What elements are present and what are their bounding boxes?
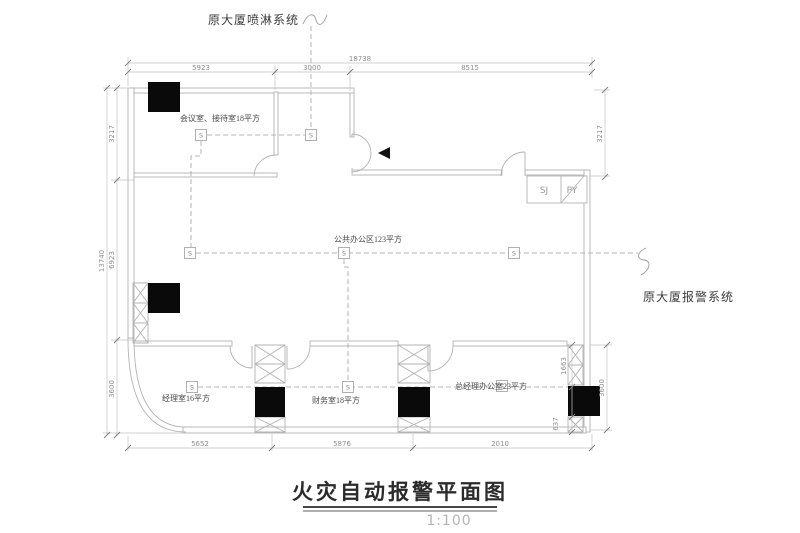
- wall-segment: [350, 93, 354, 137]
- detector-glyph: S: [342, 250, 346, 258]
- curved-wall: [128, 338, 186, 432]
- alarm-speaker: [148, 82, 180, 112]
- wall-segment: [310, 341, 398, 346]
- room-label-open-office: 公共办公区123平方: [334, 234, 402, 244]
- room-label-manager: 经理室16平方: [162, 393, 210, 403]
- annotation-alarm-system: 原大厦报警系统: [643, 289, 734, 304]
- alarm-speaker: [398, 387, 430, 417]
- dim-top-3: 8515: [461, 64, 479, 72]
- alarm-speaker: [568, 386, 600, 416]
- detector-glyph: S: [199, 132, 203, 140]
- structural-columns: [133, 283, 583, 432]
- shaft-label-py: PY: [567, 186, 578, 196]
- break-squiggle-right: [639, 248, 649, 275]
- dim-top-2: 3000: [303, 64, 321, 72]
- break-squiggle-top: [303, 15, 327, 25]
- wire: [191, 141, 201, 247]
- smoke-detector: S: [509, 248, 520, 259]
- alarm-wiring: [191, 26, 638, 387]
- room-labels: 会议室、接待室18平方 公共办公区123平方 经理室16平方 财务室18平方 总…: [162, 113, 527, 405]
- wall-segment: [352, 170, 502, 175]
- drawing-scale: 1:100: [426, 513, 471, 529]
- dim-left-total: 13740: [98, 250, 106, 272]
- cad-sheet: SJ PY S S S S S S S S: [0, 0, 800, 533]
- wall-segment: [525, 170, 587, 175]
- detector-glyph: S: [190, 384, 194, 392]
- door-arc: [230, 346, 252, 368]
- floor-plan-canvas: SJ PY S S S S S S S S: [0, 0, 800, 533]
- shaft-boxes: SJ PY: [527, 176, 587, 203]
- dim-right-2: 3600: [598, 379, 606, 397]
- smoke-detector: S: [196, 130, 207, 141]
- dim-top-1: 5923: [192, 64, 210, 72]
- smoke-detector: S: [185, 248, 196, 259]
- wall-segment: [183, 427, 586, 433]
- wall-segment: [453, 341, 567, 346]
- double-door-entrance: [352, 134, 371, 172]
- shaft-outline: [527, 176, 587, 203]
- dim-left-1: 3217: [108, 125, 116, 143]
- title-block: 火灾自动报警平面图 1:100: [292, 480, 508, 529]
- smoke-detector: S: [306, 130, 317, 141]
- room-label-finance: 财务室18平方: [312, 395, 360, 405]
- door-arc: [428, 346, 453, 371]
- wall-segment: [134, 173, 277, 177]
- annotation-sprinkler-system: 原大厦喷淋系统: [208, 13, 299, 27]
- door-arc: [501, 152, 525, 176]
- smoke-detector: S: [343, 382, 354, 393]
- room-label-meeting: 会议室、接待室18平方: [180, 113, 260, 123]
- smoke-detector: S: [339, 248, 350, 259]
- room-label-gm-office: 总经理办公室23平方: [455, 381, 527, 391]
- dim-inner-1: 1663: [560, 357, 568, 375]
- dim-top-total: 18738: [349, 55, 371, 63]
- dim-left-2: 6923: [108, 251, 116, 269]
- smoke-detector: S: [187, 382, 198, 393]
- detector-glyph: S: [309, 132, 313, 140]
- dim-right-1: 3217: [596, 125, 604, 143]
- dim-bottom-3: 2010: [491, 440, 509, 448]
- detector-glyph: S: [346, 384, 350, 392]
- wire: [344, 259, 348, 381]
- alarm-speaker: [255, 387, 285, 417]
- wall-segment: [134, 341, 232, 346]
- door-arc: [287, 346, 310, 369]
- entrance-arrow-icon: [378, 147, 390, 159]
- shaft-label-sj: SJ: [540, 186, 548, 196]
- detector-glyph: S: [512, 250, 516, 258]
- dim-inner-2: 637: [552, 417, 560, 430]
- dim-left-3: 3600: [108, 380, 116, 398]
- alarm-speakers: [148, 82, 600, 417]
- wall-segment: [274, 92, 278, 155]
- detector-glyph: S: [188, 250, 192, 258]
- dim-bottom-2: 5876: [333, 440, 351, 448]
- alarm-speaker: [148, 283, 180, 313]
- drawing-title: 火灾自动报警平面图: [292, 480, 508, 504]
- x-column: [133, 283, 148, 343]
- dim-bottom-1: 5652: [191, 440, 209, 448]
